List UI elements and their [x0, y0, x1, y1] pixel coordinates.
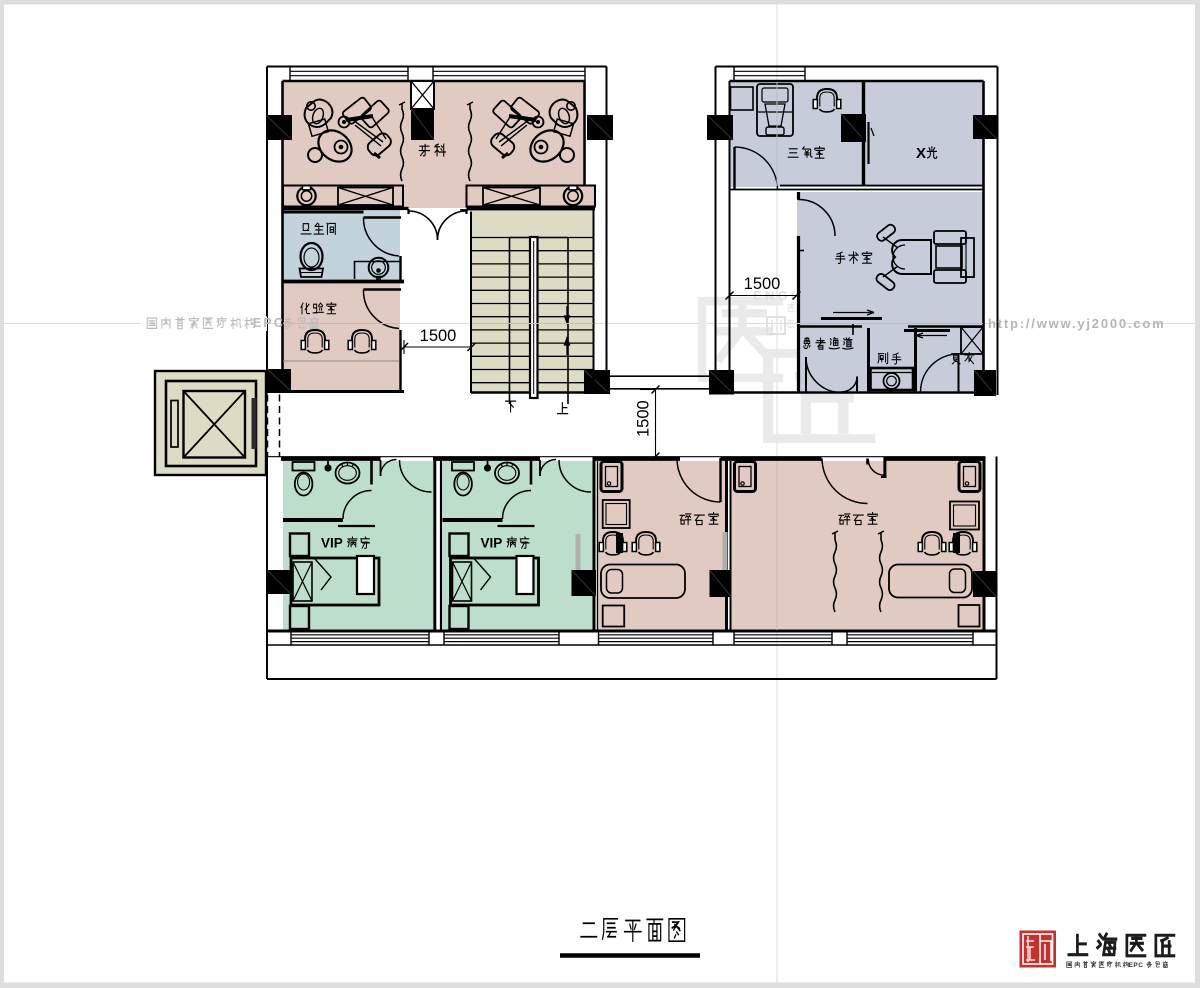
- svg-text:VIP: VIP: [321, 536, 343, 551]
- svg-text:EPC: EPC: [253, 316, 285, 330]
- svg-text:EPC: EPC: [1129, 962, 1144, 969]
- svg-text:1500: 1500: [420, 327, 457, 345]
- svg-text:1500: 1500: [744, 275, 781, 293]
- svg-text:http://www.yj2000.com: http://www.yj2000.com: [988, 316, 1165, 331]
- svg-text:1500: 1500: [635, 400, 653, 437]
- svg-text:X: X: [916, 145, 926, 162]
- svg-text:VIP: VIP: [481, 536, 503, 551]
